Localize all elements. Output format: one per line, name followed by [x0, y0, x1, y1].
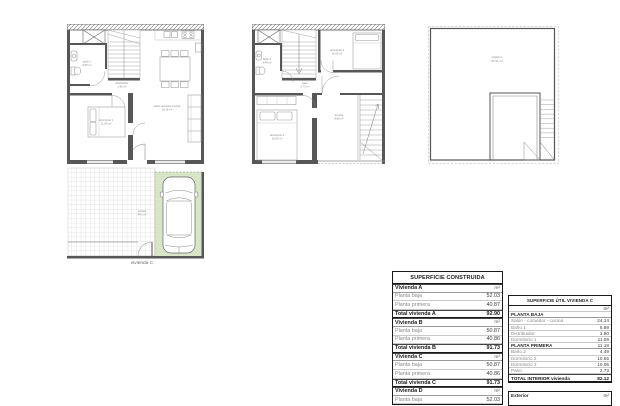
table-total-row: Total vivienda C91.73 [393, 379, 502, 388]
superficie-exterior-table: Exterior m² [508, 391, 612, 406]
shaft [83, 30, 105, 44]
room-label: dormitorio 2 [270, 133, 285, 137]
table-row: Vivienda Am² [393, 284, 502, 293]
superficie-util-table: SUPERFICIE ÚTIL VIVIENDA C m² PLANTA BAJ… [508, 295, 612, 383]
table-row: Vivienda Cm² [393, 353, 502, 362]
table-row: Vivienda Dm² [393, 387, 502, 396]
planta-baja-plan: baño 1 5.89 m² distribuidor 1.90 m² dorm… [67, 24, 204, 164]
car-symbol [160, 177, 198, 253]
table-total-row: Total vivienda B91.73 [393, 344, 502, 353]
svg-text:44.1 m²: 44.1 m² [138, 213, 147, 217]
svg-text:24.14 m²: 24.14 m² [162, 108, 173, 112]
svg-text:10.65 m²: 10.65 m² [272, 137, 283, 141]
table-total-row: Total vivienda A92.90 [393, 310, 502, 319]
table-row: Exterior m² [509, 392, 611, 399]
room-label: salón-comedor-cocina [154, 104, 181, 108]
solarium-outline [431, 29, 555, 161]
svg-text:31.91 m²: 31.91 m² [491, 59, 502, 63]
sink-symbol [256, 51, 262, 60]
room-label: terraza [335, 113, 344, 117]
table-row: Planta primera40.86 [393, 336, 502, 345]
wardrobe-symbol [257, 97, 296, 105]
room-label: baño 2 [263, 57, 272, 61]
table-row: Planta primera40.87 [393, 301, 502, 310]
room-label: dormitorio 1 [99, 118, 114, 122]
bathroom-fixtures [71, 51, 81, 75]
superficie-construida-table: SUPERFICIE CONSTRUIDA Vivienda Am² Plant… [392, 271, 503, 405]
shaft [258, 30, 280, 44]
svg-text:8.86 m²: 8.86 m² [334, 117, 343, 121]
svg-text:2.73 m²: 2.73 m² [300, 85, 309, 89]
table-total-row: TOTAL INTERIOR vivienda82.12 [509, 374, 611, 382]
table-row: Vivienda Bm² [393, 318, 502, 327]
plot-plan: terraza 44.1 m² [67, 163, 204, 260]
table-row: Planta baja50.87 [393, 361, 502, 370]
table-row: Planta baja50.87 [393, 327, 502, 336]
svg-text:4.49 m²: 4.49 m² [262, 61, 271, 65]
mirror [195, 192, 198, 197]
stairs [108, 30, 140, 78]
dining-table-symbol [160, 51, 190, 88]
bed-symbol [353, 33, 381, 69]
plot-label: terraza 44.1 m² [138, 209, 147, 217]
mirror [160, 192, 163, 197]
svg-text:1.90 m²: 1.90 m² [117, 85, 126, 89]
exterior-stairs [358, 95, 382, 160]
kitchen-symbols [155, 30, 201, 52]
appliance-symbol [195, 43, 201, 52]
svg-text:10.05 m²: 10.05 m² [332, 52, 343, 56]
table-title: SUPERFICIE ÚTIL VIVIENDA C [509, 296, 611, 306]
room-labels: solárium 31.91 m² [491, 55, 503, 63]
stairs [282, 30, 316, 78]
table-row: Planta baja52.03 [393, 396, 502, 405]
room-label: distribuidor [115, 81, 128, 85]
sink-symbol [71, 51, 77, 61]
room-label: dormitorio 3 [330, 48, 345, 52]
table-row: Planta baja52.03 [393, 293, 502, 302]
table-row: Planta primera40.86 [393, 370, 502, 379]
svg-text:terraza: terraza [138, 209, 147, 213]
svg-text:11.09 m²: 11.09 m² [101, 122, 112, 126]
svg-text:5.89 m²: 5.89 m² [82, 63, 91, 67]
solarium-plan: solárium 31.91 m² [428, 26, 559, 164]
planta-primera-plan: baño 2 4.49 m² paso 2.73 m² dormitorio 3… [252, 24, 385, 164]
kitchen-sink-symbol [164, 32, 170, 38]
plan-caption: vivienda C [102, 261, 182, 266]
room-label: baño 1 [83, 60, 92, 64]
table-title: SUPERFICIE CONSTRUIDA [393, 272, 502, 284]
sofa-symbol [188, 95, 201, 142]
